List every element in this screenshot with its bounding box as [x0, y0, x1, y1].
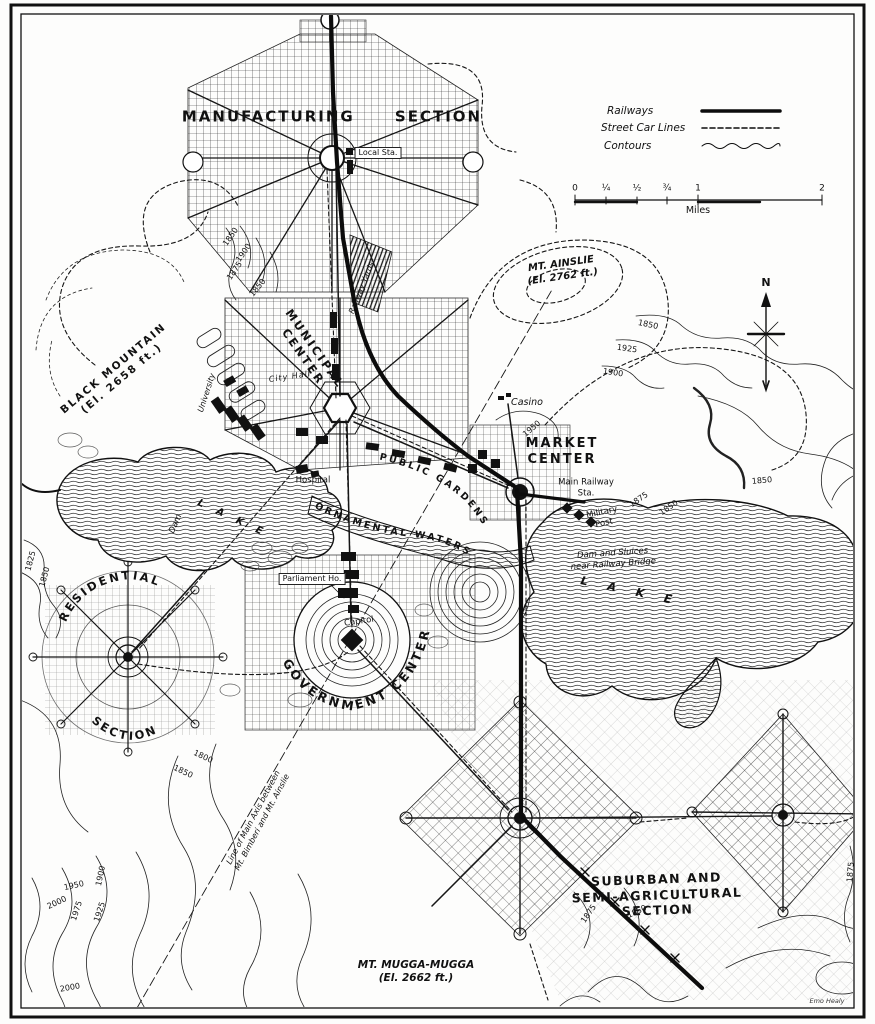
label-dam-and-sluices: Dam and Sluices near Railway Bridge	[570, 545, 657, 572]
contour-label: 1850	[637, 318, 659, 332]
contour-label: 2000	[46, 894, 69, 912]
label-lake-east: LAKE	[579, 573, 693, 611]
map-labels: MANUFACTURING SECTION Local Sta. Railway…	[0, 0, 875, 1024]
contour-label: 1800	[192, 748, 215, 766]
contour-label: 1850	[221, 226, 241, 248]
label-main-axis: Line of Main Axis between Mt. Bimberi an…	[224, 768, 292, 872]
label-suburban-section: SUBURBAN AND SEMI-AGRICULTURAL SECTION	[571, 869, 743, 922]
contour-label: 1875	[628, 490, 650, 510]
legend-label-contours: Contours	[604, 140, 651, 152]
scale-tick-threequarter: ¾	[663, 183, 672, 194]
label-university: University	[196, 372, 218, 413]
label-main-railway-station: Main Railway Sta.	[558, 477, 614, 498]
contour-label: 1850	[658, 498, 680, 518]
label-municipal-center: MUNICIPAL CENTER	[270, 306, 347, 399]
scale-tick-quarter: ¼	[602, 183, 611, 194]
scale-unit-label: Miles	[686, 205, 710, 217]
scale-tick-0: 0	[572, 183, 578, 194]
contour-label: 1875	[845, 861, 857, 882]
label-mt-ainslie: MT. AINSLIE (El. 2762 ft.)	[525, 254, 599, 289]
contour-label: 1925	[616, 343, 638, 356]
label-local-station: Local Sta.	[355, 147, 402, 159]
legend-label-railways: Railways	[607, 105, 653, 117]
scale-tick-half: ½	[633, 183, 642, 194]
label-city-hall: City Hall	[268, 369, 312, 385]
compass-north-label: N	[761, 276, 770, 290]
contour-label: 1850	[751, 475, 772, 487]
scale-tick-1: 1	[695, 183, 701, 194]
label-mt-mugga-mugga: MT. MUGGA-MUGGA (El. 2662 ft.)	[358, 959, 475, 985]
label-railway-yards: Railway Yards	[347, 261, 377, 316]
map-signature: Emo Healy	[809, 997, 844, 1005]
contour-label: 1925	[92, 901, 108, 923]
scale-tick-2: 2	[819, 183, 825, 194]
contour-label: 1975	[69, 900, 85, 922]
contour-label: 1850	[38, 566, 53, 588]
label-parliament-house: Parliament Ho.	[279, 573, 346, 585]
label-black-mountain: BLACK MOUNTAIN (El. 2658 ft.)	[58, 321, 178, 427]
label-manufacturing-section: MANUFACTURING SECTION	[52, 108, 612, 127]
contour-label: 1875	[225, 260, 245, 282]
contour-label: 1900	[94, 865, 108, 887]
label-military-post: Military Post	[585, 504, 620, 531]
contour-label: 2000	[59, 981, 81, 994]
label-casino: Casino	[511, 397, 543, 409]
label-capitol: Capitol	[344, 615, 375, 630]
map-page: GOVERNMENT CENTER RESIDENTIAL SECTION PU…	[0, 0, 875, 1024]
contour-label: 1850	[172, 763, 195, 781]
contour-label: 1950	[63, 879, 85, 893]
legend-label-street-car-lines: Street Car Lines	[601, 122, 685, 134]
label-hospital: Hospital	[296, 476, 331, 487]
label-lake-west: LAKE	[195, 497, 277, 544]
contour-label: 1900	[602, 367, 624, 380]
label-dam: Dam	[167, 513, 185, 536]
contour-label: 1850	[248, 277, 269, 299]
contour-label: 1825	[24, 550, 39, 572]
label-market-center: MARKET CENTER	[526, 436, 599, 469]
